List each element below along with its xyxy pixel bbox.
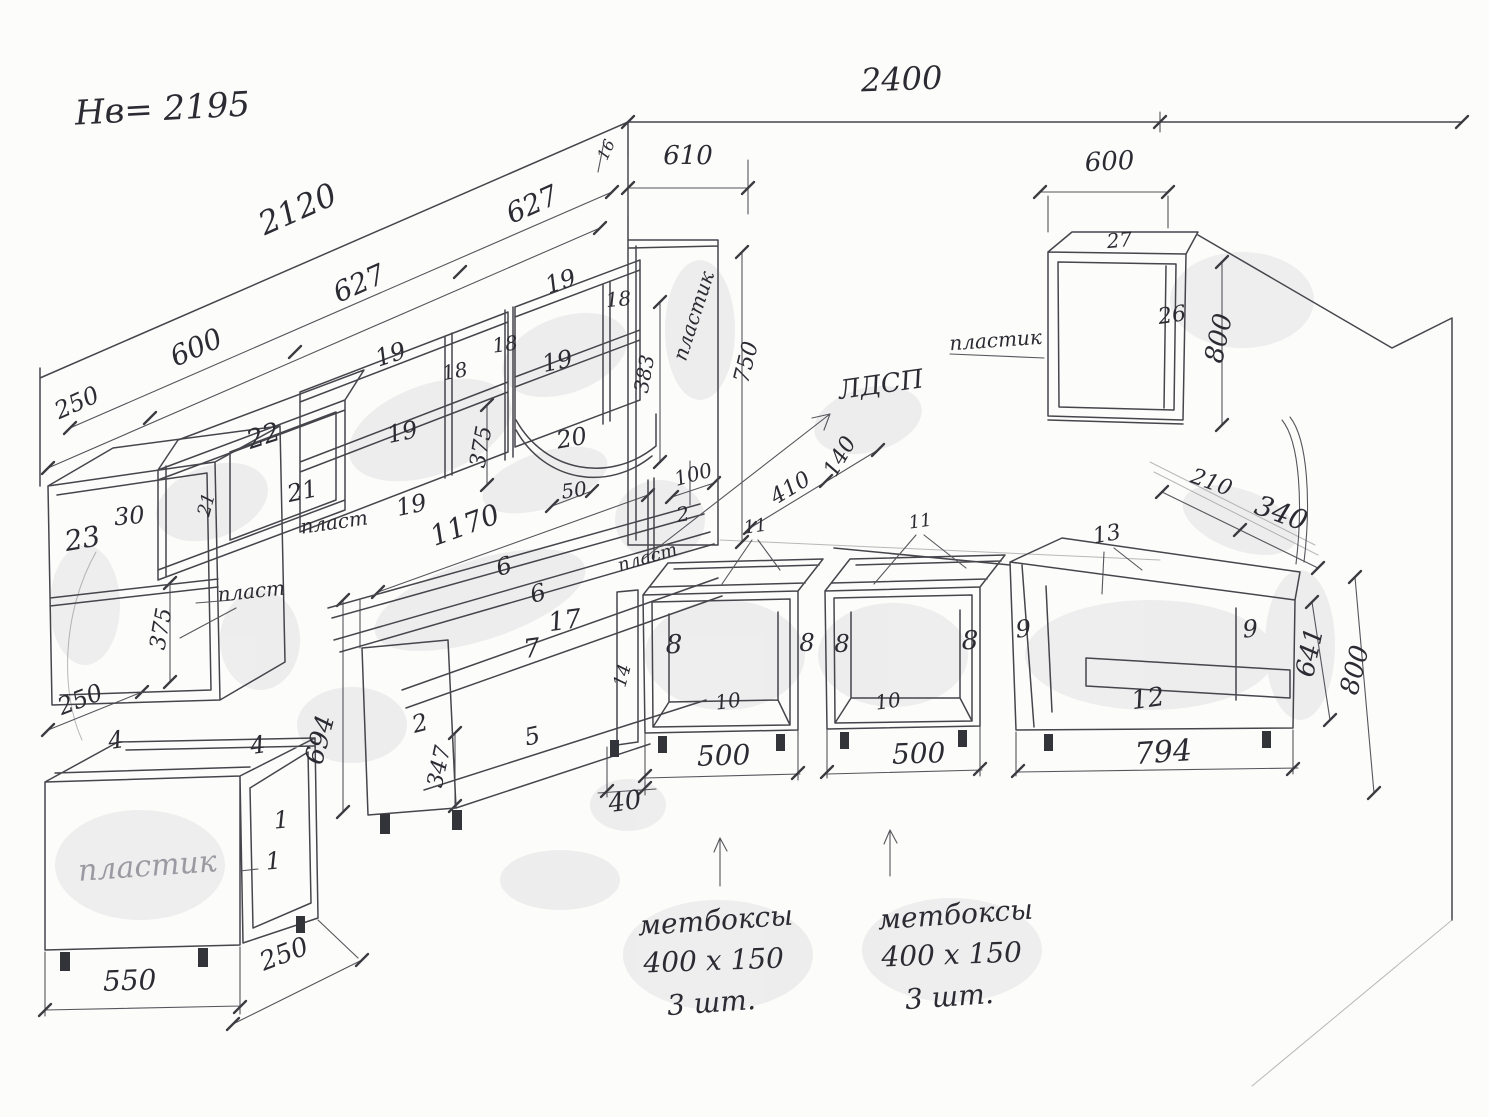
part-4-back-rail: 4 [247,730,267,760]
part-8-b-left: 8 [834,630,849,658]
dim-23-375: 375 [146,606,178,652]
part-11-right: 11 [907,510,933,534]
dim-40: 40 [605,785,643,819]
part-13-rail: 13 [1091,520,1123,549]
part-19-top-right: 19 [542,263,580,299]
part-18-divider-right: 18 [605,286,632,312]
part-1-side: 1 [272,805,290,834]
dim-794: 794 [1134,733,1194,772]
part-10-b: 10 [874,687,903,714]
dim-500-b: 500 [891,736,946,771]
dim-corner-50: 50 [560,476,589,503]
dim-550: 550 [102,963,157,998]
dim-250-depth: 250 [255,932,313,978]
part-4-front-rail: 4 [105,725,125,755]
header-height-note: Нв= 2195 [73,84,251,133]
part-7-rail: 7 [522,633,543,665]
dim-left-wall-2120: 2120 [252,175,343,243]
part-27-top: 27 [1105,227,1134,253]
note-mebox-left-line2: 400 х 150 [642,942,785,980]
part-30: 30 [113,501,146,532]
note-mebox-right-line3: 3 шт. [904,977,995,1016]
part-23: 23 [61,519,103,558]
part-8-a-left: 8 [666,630,683,660]
dim-left-627-upper: 627 [501,178,563,230]
dim-counter-1170: 1170 [426,497,504,552]
dim-347: 347 [423,744,456,790]
part-5-drawer: 5 [522,721,543,752]
dim-corner-610: 610 [663,141,713,171]
drawing-canvas: Нв= 219524002120627627600250610166002726… [0,0,1489,1117]
part-12-bottom: 12 [1129,682,1166,716]
dim-500-a: 500 [696,738,751,773]
part-26-side: 26 [1156,301,1188,330]
sketch-sheet: Нв= 219524002120627627600250610166002726… [0,0,1489,1117]
part-20-curved-shelf: 20 [553,422,589,455]
dim-left-600: 600 [165,321,227,373]
part-9-right: 9 [1241,614,1259,643]
part-19-top-left: 19 [372,336,410,372]
dim-800-lower: 800 [1335,642,1376,697]
part-1-back: 1 [264,846,282,875]
part-22-top: 22 [242,417,284,456]
dim-corner-100: 100 [672,458,715,491]
part-18-divider-left: 18 [440,357,469,385]
labels-layer: Нв= 219524002120627627600250610166002726… [49,59,1376,1022]
dim-250-under-23: 250 [53,678,107,721]
part-2-drawer: 2 [408,708,431,739]
part-11-left: 11 [742,515,768,539]
part-19-bottom-left: 19 [393,488,429,522]
dim-top-wall-2400: 2400 [859,59,943,100]
part-10-a: 10 [714,687,743,714]
part-8-a-right: 8 [799,629,814,657]
part-8-b-right: 8 [962,626,979,656]
dim-left-250: 250 [49,381,103,426]
dim-corner-16: 16 [593,136,619,162]
note-plastik-right: пластик [949,325,1043,355]
dim-right-600: 600 [1084,146,1135,179]
part-17-rail: 17 [546,604,583,638]
part-18-divider-tall: 18 [491,330,520,357]
dim-corner-383: 383 [629,353,659,395]
part-9-left: 9 [1014,614,1032,643]
part-21-back: 21 [284,474,321,508]
dim-corner-750: 750 [729,339,763,386]
note-mebox-left-line3: 3 шт. [666,983,757,1022]
note-mebox-right-line2: 400 х 150 [880,936,1023,974]
part-14-divider: 14 [610,662,636,690]
